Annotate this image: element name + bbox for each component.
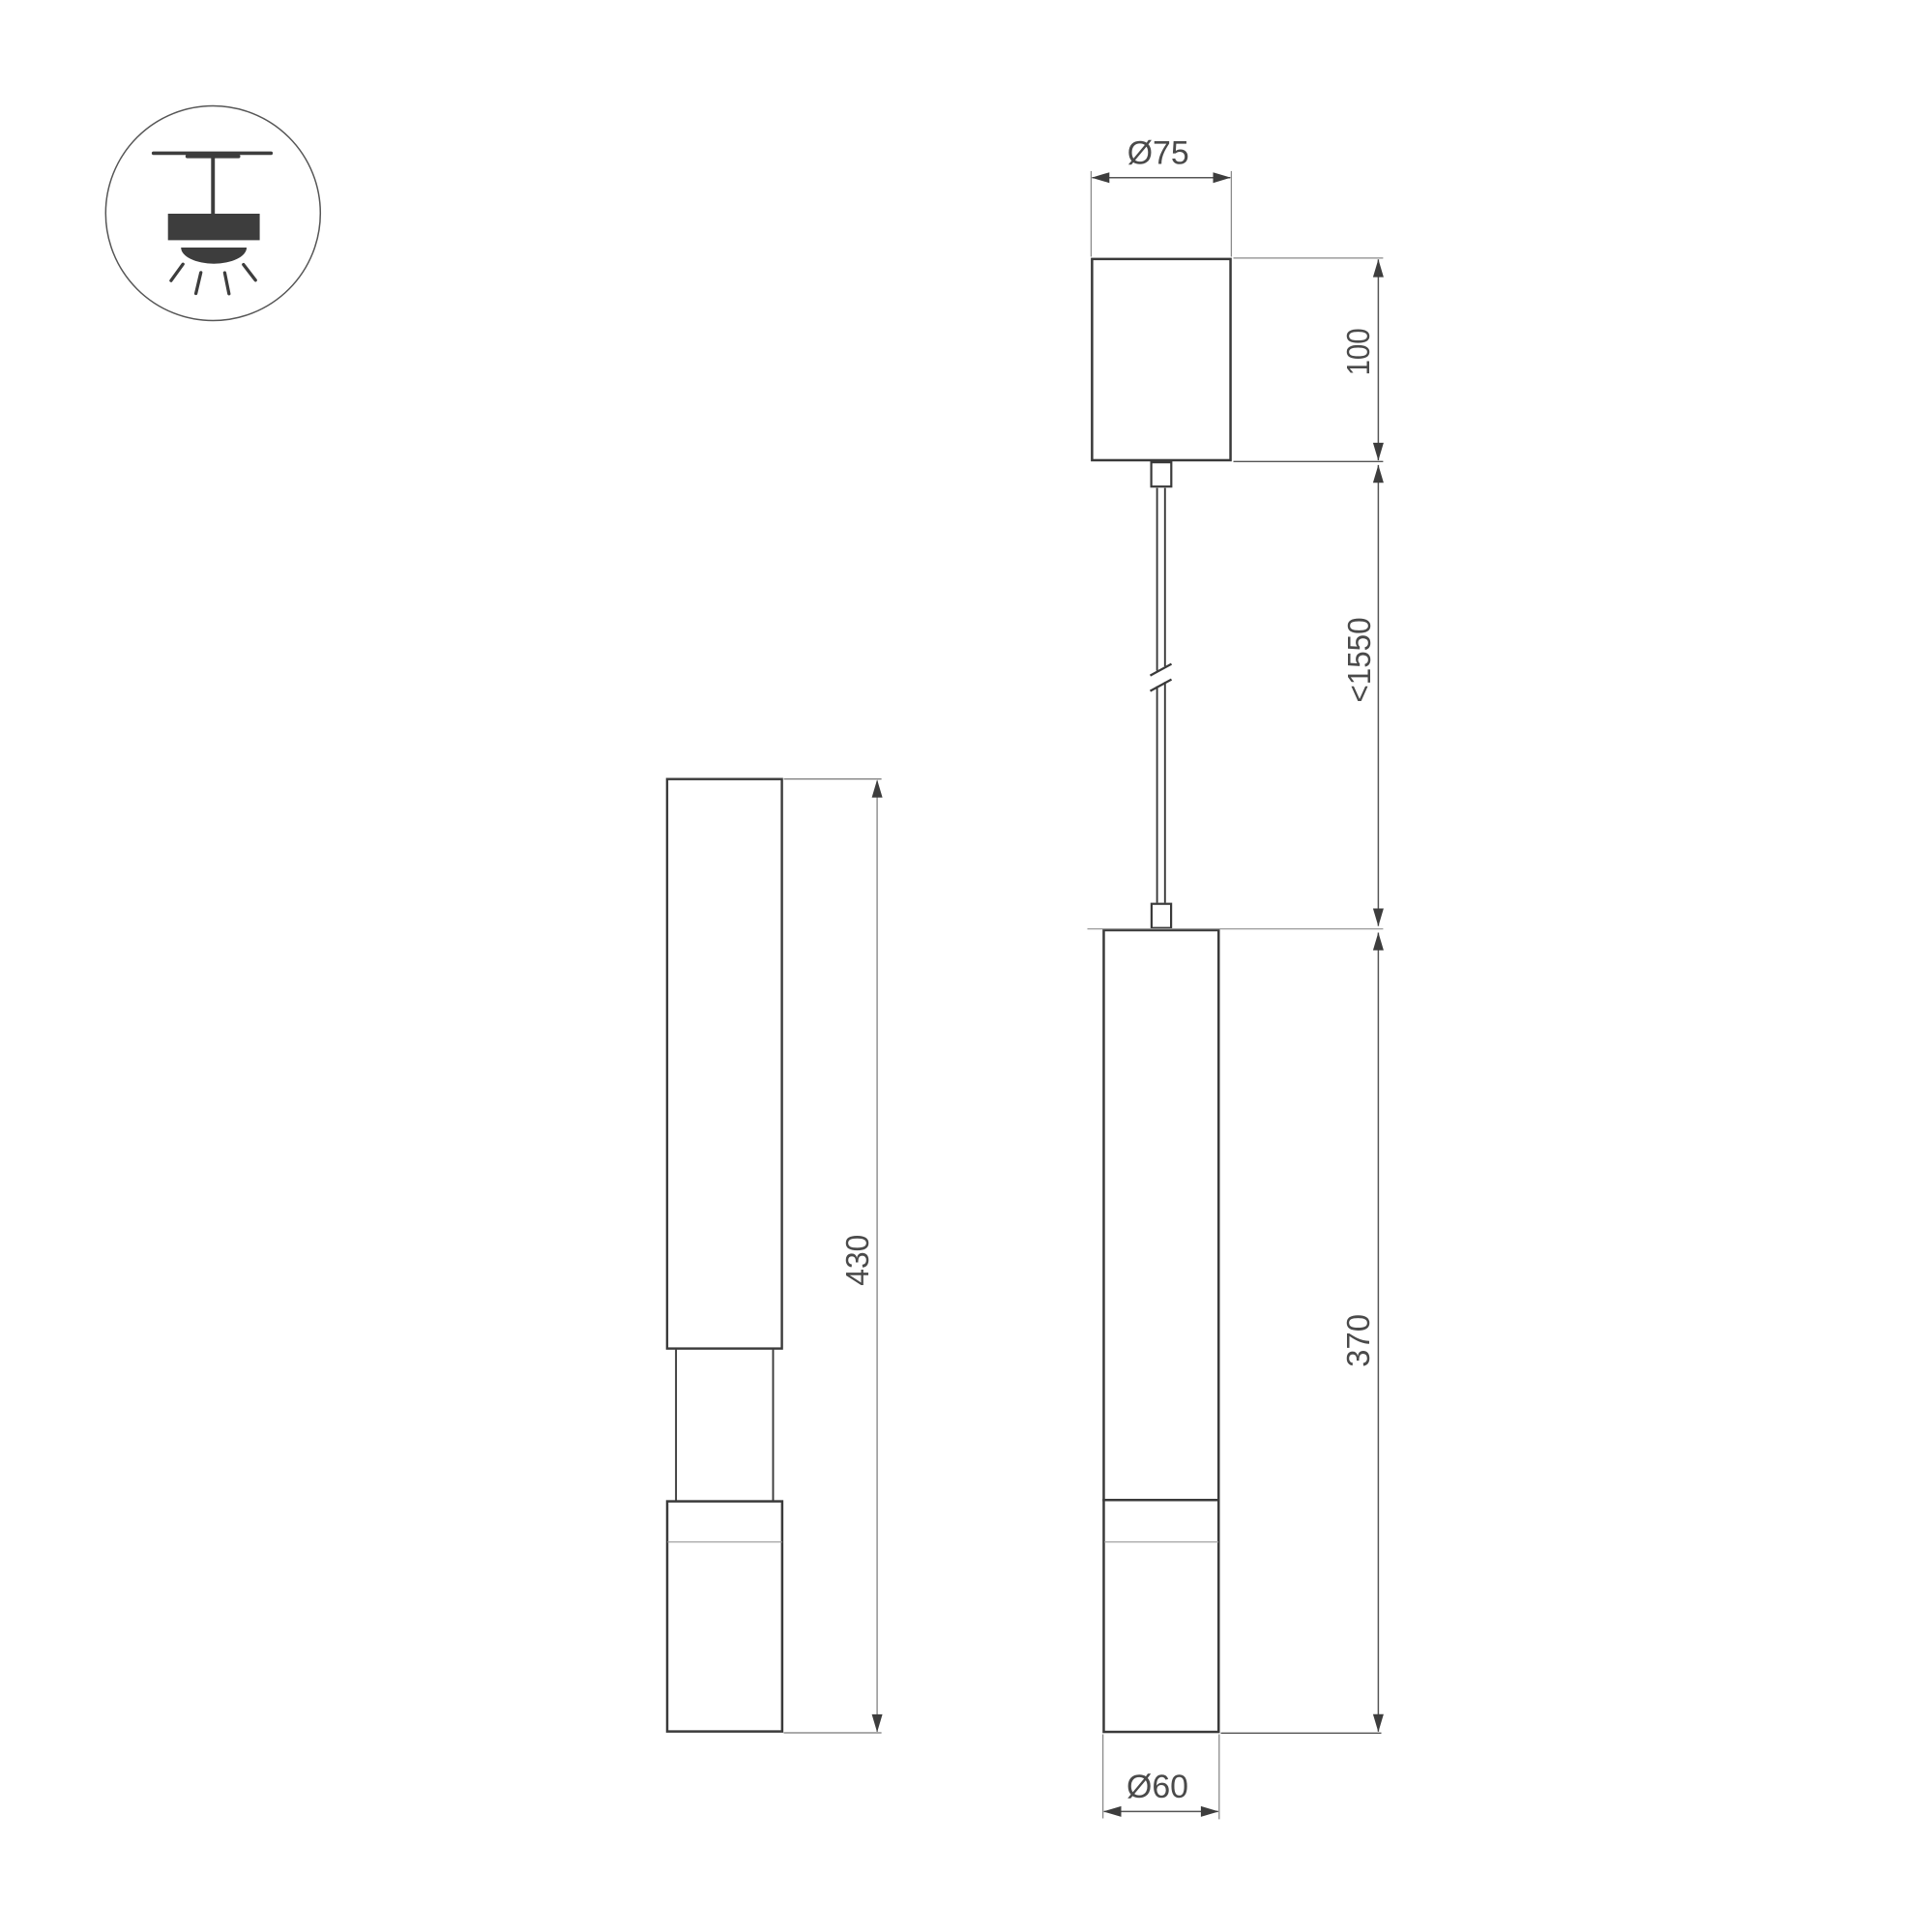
svg-text:370: 370 bbox=[1340, 1314, 1376, 1367]
svg-text:430: 430 bbox=[839, 1235, 875, 1286]
svg-text:<1550: <1550 bbox=[1341, 618, 1377, 703]
svg-text:Ø60: Ø60 bbox=[1127, 1769, 1188, 1805]
svg-text:Ø75: Ø75 bbox=[1127, 134, 1189, 171]
svg-text:100: 100 bbox=[1340, 328, 1376, 375]
